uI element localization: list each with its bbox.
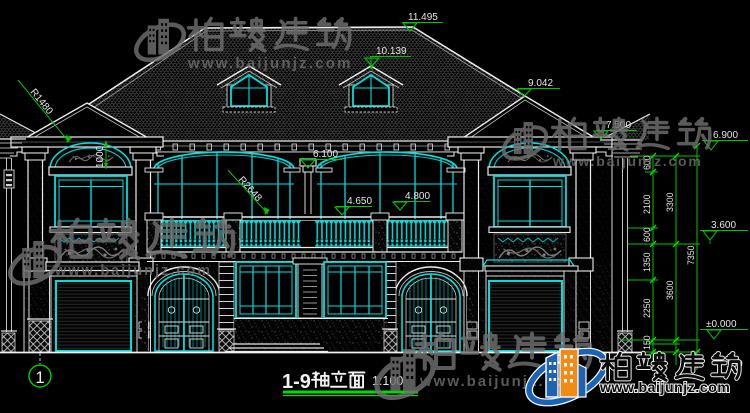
svg-text:600: 600 bbox=[642, 227, 652, 242]
svg-text:1-9: 1-9 bbox=[282, 371, 311, 393]
svg-text:11.495: 11.495 bbox=[408, 12, 438, 23]
svg-text:1: 1 bbox=[35, 368, 44, 387]
svg-text:4.650: 4.650 bbox=[347, 196, 372, 207]
svg-text:www.baijunjz.com: www.baijunjz.com bbox=[552, 153, 703, 169]
svg-text:1000: 1000 bbox=[95, 145, 106, 168]
svg-text:6.100: 6.100 bbox=[313, 149, 338, 160]
svg-text:2250: 2250 bbox=[642, 298, 652, 318]
svg-text:3600: 3600 bbox=[665, 280, 675, 300]
svg-text:10.139: 10.139 bbox=[376, 46, 407, 57]
svg-text:www.baijunjz.com: www.baijunjz.com bbox=[187, 55, 353, 72]
svg-text:3300: 3300 bbox=[665, 192, 675, 212]
svg-text:www.baijunjz.com: www.baijunjz.com bbox=[599, 379, 730, 395]
svg-text:3.600: 3.600 bbox=[711, 220, 736, 231]
svg-text:6.900: 6.900 bbox=[713, 130, 738, 141]
svg-text:9.042: 9.042 bbox=[528, 78, 553, 89]
svg-text:2100: 2100 bbox=[642, 194, 652, 214]
svg-text:www.baijunjz.com: www.baijunjz.com bbox=[54, 263, 212, 279]
svg-text:7350: 7350 bbox=[686, 245, 696, 265]
svg-text:150: 150 bbox=[642, 335, 652, 350]
svg-text:±0.000: ±0.000 bbox=[706, 319, 737, 330]
svg-text:4.800: 4.800 bbox=[405, 191, 430, 202]
svg-text:1350: 1350 bbox=[642, 252, 652, 272]
